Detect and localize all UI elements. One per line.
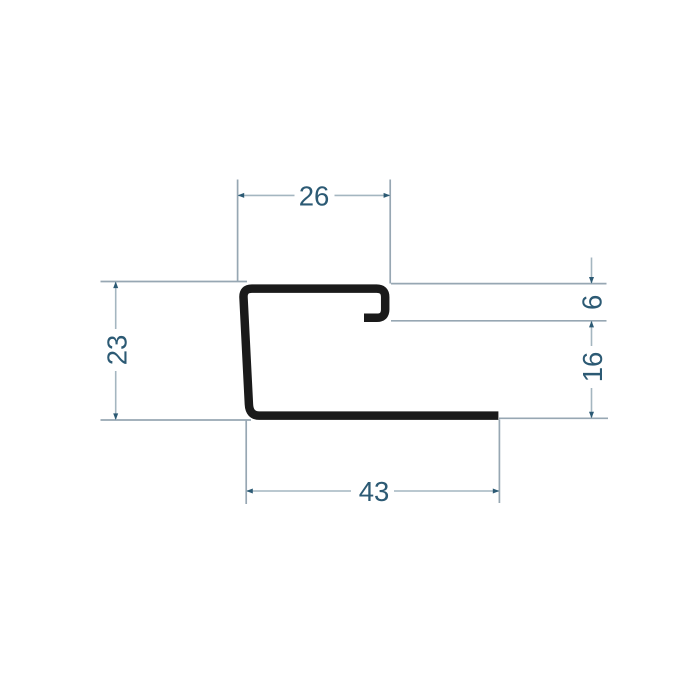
svg-text:23: 23: [101, 335, 132, 366]
svg-text:16: 16: [577, 352, 608, 383]
svg-text:26: 26: [299, 181, 330, 212]
svg-text:6: 6: [577, 295, 608, 310]
svg-text:43: 43: [359, 476, 390, 507]
